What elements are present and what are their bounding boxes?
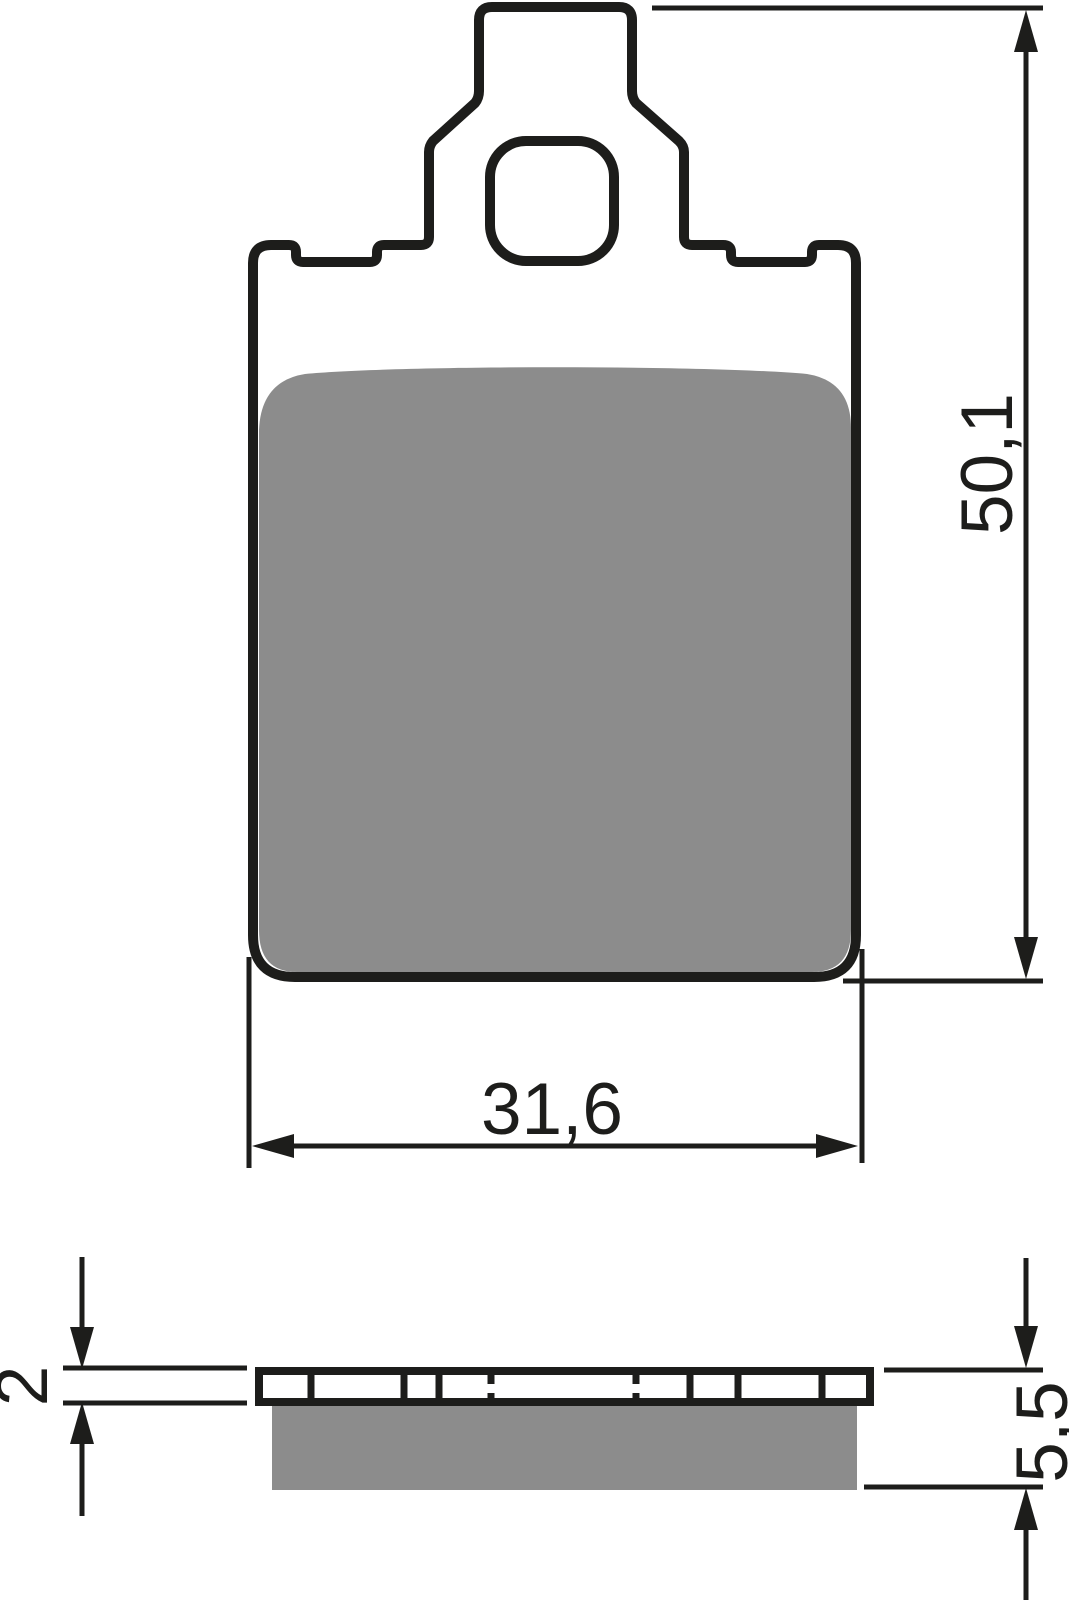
mounting-hole <box>490 141 614 261</box>
backplate <box>259 1371 870 1402</box>
dimension-label-height: 50,1 <box>947 393 1028 535</box>
arrowhead-right <box>816 1134 858 1158</box>
arrowhead-down <box>1014 1326 1038 1368</box>
side-view <box>259 1371 870 1490</box>
dimension-label-backplate: 2 <box>0 1366 63 1407</box>
dimension-label-width: 31,6 <box>481 1069 623 1150</box>
arrowhead-up <box>70 1402 94 1444</box>
friction-material-side <box>272 1406 857 1490</box>
friction-material-front <box>259 367 851 972</box>
arrowhead-down <box>70 1327 94 1369</box>
dimension-total-thickness: 5,5 <box>864 1258 1069 1600</box>
arrowhead-down <box>1014 937 1038 979</box>
arrowhead-up <box>1014 1488 1038 1530</box>
arrowhead-up <box>1014 10 1038 52</box>
arrowhead-left <box>252 1134 294 1158</box>
drawing-canvas: 50,1 31,6 2 5,5 <box>0 0 1069 1600</box>
dimension-backplate-thickness: 2 <box>0 1257 247 1516</box>
dimension-label-total: 5,5 <box>1002 1381 1069 1482</box>
front-view <box>253 7 856 977</box>
